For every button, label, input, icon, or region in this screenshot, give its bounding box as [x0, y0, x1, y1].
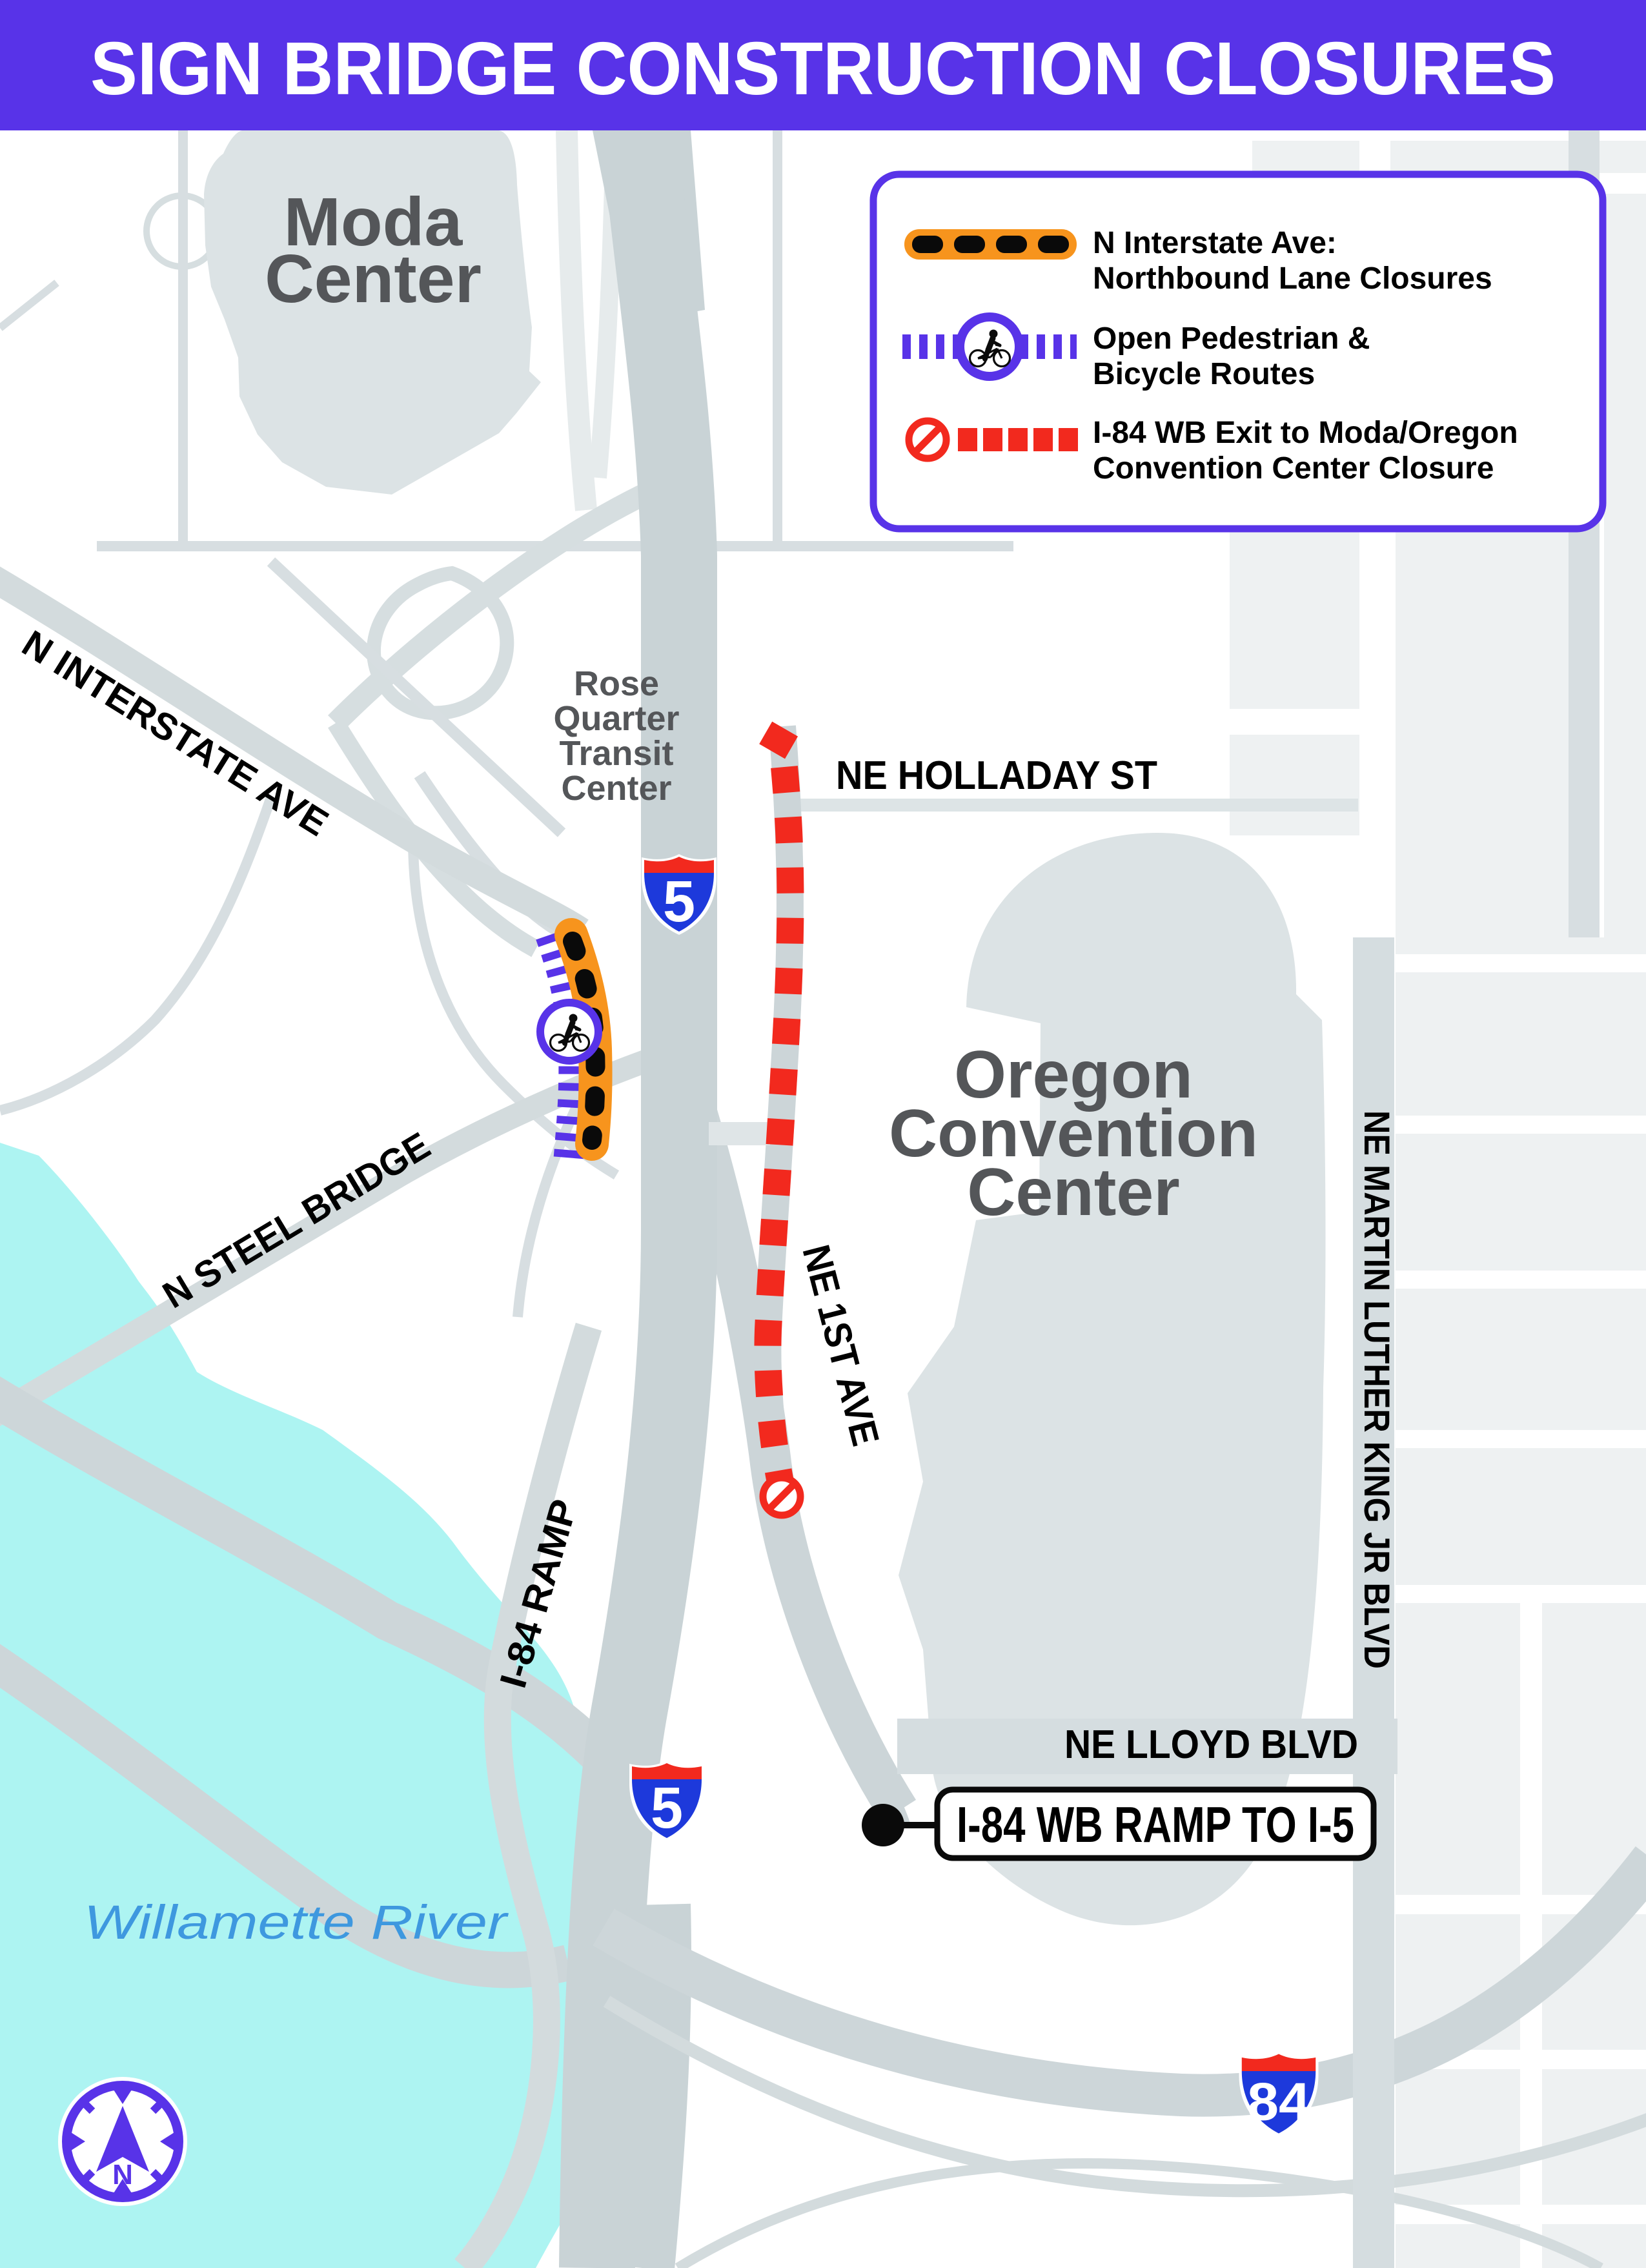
svg-text:Rose: Rose [574, 664, 659, 703]
svg-text:Northbound Lane Closures: Northbound Lane Closures [1093, 261, 1492, 296]
svg-text:Center: Center [265, 241, 482, 317]
svg-text:I-84 WB RAMP TO I-5: I-84 WB RAMP TO I-5 [957, 1796, 1354, 1853]
svg-text:N Interstate Ave:: N Interstate Ave: [1093, 226, 1337, 260]
svg-text:NE HOLLADAY ST: NE HOLLADAY ST [836, 753, 1157, 798]
svg-text:Convention Center Closure: Convention Center Closure [1093, 451, 1494, 485]
svg-text:Willamette River: Willamette River [84, 1895, 509, 1949]
svg-text:Bicycle Routes: Bicycle Routes [1093, 357, 1315, 391]
svg-text:84: 84 [1247, 2071, 1310, 2131]
svg-text:I-84 WB Exit to Moda/Oregon: I-84 WB Exit to Moda/Oregon [1093, 416, 1518, 450]
svg-text:NE LLOYD BLVD: NE LLOYD BLVD [1064, 1722, 1358, 1767]
svg-text:5: 5 [651, 1776, 683, 1841]
svg-text:NE MARTIN LUTHER KING JR BLVD: NE MARTIN LUTHER KING JR BLVD [1357, 1110, 1397, 1669]
svg-text:Center: Center [561, 769, 671, 808]
svg-text:SIGN BRIDGE CONSTRUCTION CLOSU: SIGN BRIDGE CONSTRUCTION CLOSURES [90, 26, 1556, 110]
svg-text:N: N [112, 2159, 133, 2191]
svg-text:5: 5 [663, 870, 695, 934]
svg-text:Quarter: Quarter [553, 699, 679, 738]
svg-text:Center: Center [967, 1155, 1179, 1230]
svg-text:Open Pedestrian &: Open Pedestrian & [1093, 322, 1370, 356]
svg-text:Transit: Transit [559, 734, 673, 773]
